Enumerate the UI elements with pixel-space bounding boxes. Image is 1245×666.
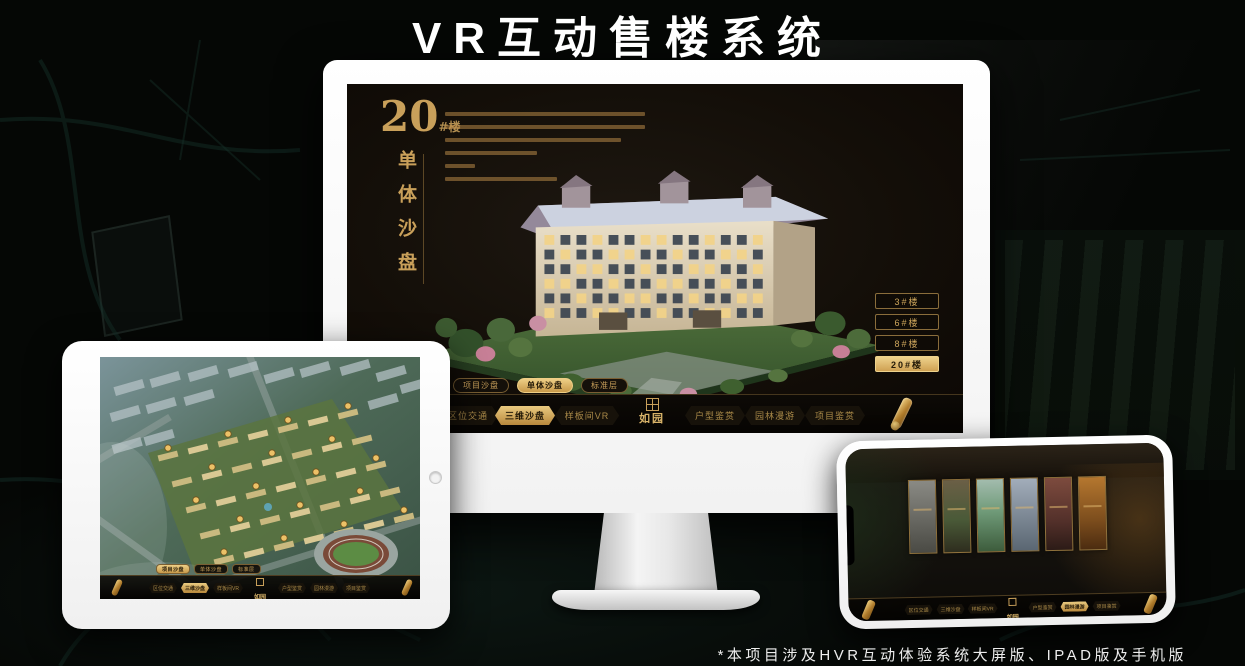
phone-nav-garden-roam[interactable]: 园林漫游 — [1060, 601, 1088, 612]
scroll-handle-icon[interactable] — [111, 579, 123, 597]
brand-logo-text: 如园 — [639, 413, 665, 424]
nav-item-garden-roam[interactable]: 园林漫游 — [745, 406, 805, 425]
phone-brand-logo: 如园 — [1006, 598, 1019, 622]
scroll-handle-icon[interactable] — [890, 396, 913, 429]
gallery-panel-garden[interactable] — [976, 478, 1006, 553]
page-title: VR互动售楼系统 — [0, 2, 1245, 66]
phone-notch — [846, 505, 854, 565]
stage: VR互动售楼系统 *本项目涉及HVR互动体验系统大屏版、IPAD版及手机版 20… — [0, 0, 1245, 666]
panel-title-vertical: 单体沙盘 — [393, 150, 420, 286]
footnote: *本项目涉及HVR互动体验系统大屏版、IPAD版及手机版 — [718, 644, 1187, 665]
tablet-nav-model-room-vr[interactable]: 样板间VR — [213, 583, 243, 593]
tab-single-sandtable[interactable]: 单体沙盘 — [517, 378, 573, 393]
title-divider — [423, 154, 424, 284]
tab-standard-floor[interactable]: 标准层 — [581, 378, 628, 393]
nav-item-model-room-vr[interactable]: 样板间VR — [555, 406, 620, 425]
gallery-panel-shelf[interactable] — [1078, 476, 1108, 551]
building-number: 20 — [380, 92, 438, 141]
floor-button-20[interactable]: 20#楼 — [875, 356, 939, 372]
tablet-tab-standard-floor[interactable]: 标准层 — [232, 564, 261, 574]
nav-item-unit-gallery[interactable]: 户型鉴赏 — [685, 406, 745, 425]
phone-nav-model-room-vr[interactable]: 样板间VR — [968, 603, 998, 614]
gallery-panel-dusk[interactable] — [1044, 477, 1074, 552]
seal-icon — [646, 398, 659, 411]
monitor-stand-base — [552, 590, 760, 610]
tablet-nav-unit-gallery[interactable]: 户型鉴赏 — [278, 583, 306, 593]
desktop-tab-bar: 项目沙盘 单体沙盘 标准层 — [453, 378, 628, 393]
nav-item-3d-sandtable[interactable]: 三维沙盘 — [495, 406, 555, 425]
floor-button-group: 3#楼 6#楼 8#楼 20#楼 — [875, 293, 939, 377]
stadium — [314, 529, 398, 579]
brand-logo-text: 如园 — [1007, 614, 1019, 621]
scroll-handle-icon[interactable] — [401, 579, 413, 597]
phone-nav-location-traffic[interactable]: 区位交通 — [905, 605, 933, 616]
tablet-brand-logo: 如园 — [254, 578, 266, 599]
tablet-tab-bar: 项目沙盘 单体沙盘 标准层 — [156, 564, 261, 574]
tablet-tab-project-sandtable[interactable]: 项目沙盘 — [156, 564, 190, 574]
gallery-panel-building[interactable] — [1010, 477, 1040, 552]
brand-logo: 如园 — [639, 398, 665, 424]
floor-button-8[interactable]: 8#楼 — [875, 335, 939, 351]
phone-device: 区位交通 三维沙盘 样板间VR 如园 户型鉴赏 园林漫游 项目鉴赏 — [836, 435, 1176, 630]
seal-icon — [1008, 598, 1016, 606]
monitor-stand-neck — [594, 513, 718, 595]
tablet-nav-project-gallery[interactable]: 项目鉴赏 — [342, 583, 370, 593]
seal-icon — [256, 578, 264, 586]
nav-item-project-gallery[interactable]: 项目鉴赏 — [805, 406, 865, 425]
panorama-gallery — [908, 476, 1108, 554]
tablet-nav-garden-roam[interactable]: 园林漫游 — [310, 583, 338, 593]
scroll-handle-icon[interactable] — [861, 599, 876, 621]
tab-project-sandtable[interactable]: 项目沙盘 — [453, 378, 509, 393]
tablet-nav-bar: 区位交通 三维沙盘 样板间VR 如园 户型鉴赏 园林漫游 项目鉴赏 — [100, 575, 420, 599]
description-text-lines — [445, 112, 645, 190]
aerial-masterplan-map — [100, 357, 420, 599]
floor-button-3[interactable]: 3#楼 — [875, 293, 939, 309]
tablet-home-button[interactable] — [429, 471, 442, 484]
tablet-nav-location-traffic[interactable]: 区位交通 — [149, 583, 177, 593]
tablet-screen: 项目沙盘 单体沙盘 标准层 区位交通 三维沙盘 样板间VR 如园 户型鉴赏 园林… — [100, 357, 420, 599]
phone-nav-3d-sandtable[interactable]: 三维沙盘 — [936, 604, 964, 615]
floor-button-6[interactable]: 6#楼 — [875, 314, 939, 330]
tablet-nav-3d-sandtable[interactable]: 三维沙盘 — [181, 583, 209, 593]
scroll-handle-icon[interactable] — [1143, 593, 1158, 615]
brand-logo-text: 如园 — [254, 594, 266, 599]
tablet-device: 项目沙盘 单体沙盘 标准层 区位交通 三维沙盘 样板间VR 如园 户型鉴赏 园林… — [62, 341, 450, 629]
tablet-tab-single-sandtable[interactable]: 单体沙盘 — [194, 564, 228, 574]
phone-nav-project-gallery[interactable]: 项目鉴赏 — [1092, 601, 1120, 612]
phone-nav-unit-gallery[interactable]: 户型鉴赏 — [1028, 602, 1056, 613]
gallery-panel-courtyard[interactable] — [908, 479, 938, 554]
gallery-panel-interior[interactable] — [942, 479, 972, 554]
phone-screen: 区位交通 三维沙盘 样板间VR 如园 户型鉴赏 园林漫游 项目鉴赏 — [845, 443, 1167, 622]
